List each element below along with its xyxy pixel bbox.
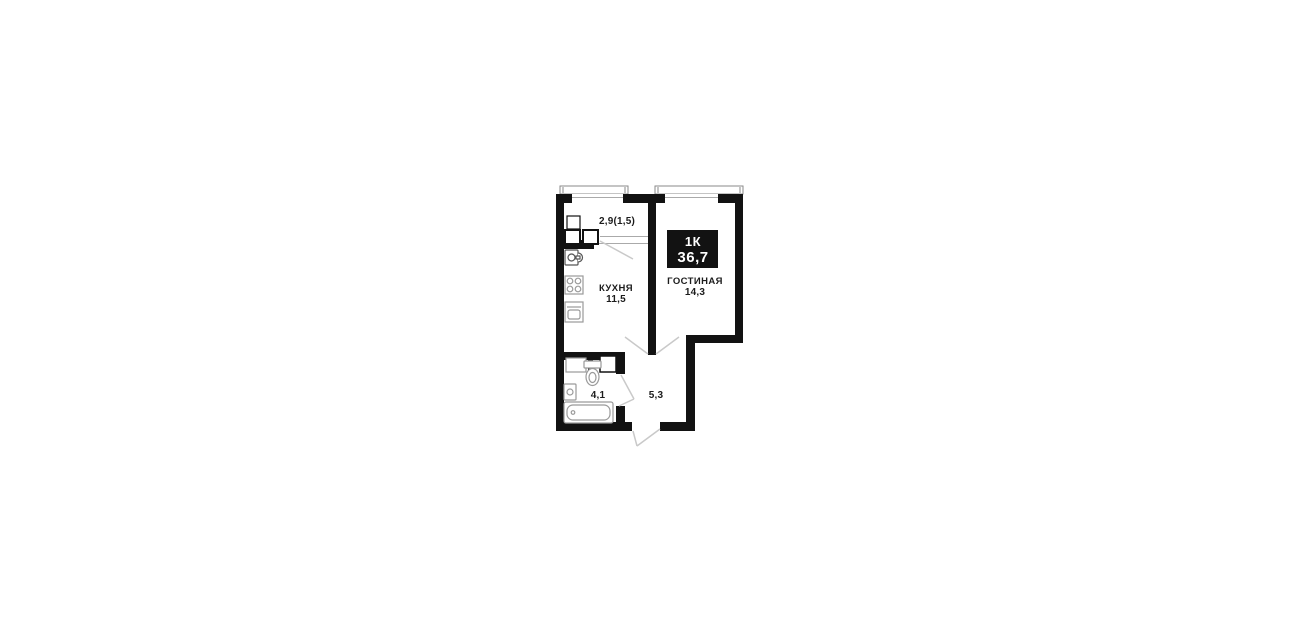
- window-opening: [665, 194, 718, 203]
- wall-hall-right: [686, 335, 695, 431]
- entrance-door-icon: [637, 429, 660, 446]
- living-name-label: ГОСТИНАЯ: [667, 276, 723, 287]
- wall-bath-right-upper: [616, 352, 625, 374]
- bathroom-area-label: 4,1: [591, 390, 606, 401]
- floor-plan-page: 1К 36,7 2,9(1,5) КУХНЯ 11,5 ГОСТИНАЯ 14,…: [0, 0, 1301, 630]
- wall-left: [556, 194, 564, 431]
- hallway-area-label: 5,3: [649, 390, 664, 401]
- balcony-cabinet-icon: [565, 216, 598, 244]
- wall-bath-right-lower: [616, 406, 625, 431]
- wall-divider: [648, 194, 656, 355]
- floor-plan: 1К 36,7 2,9(1,5) КУХНЯ 11,5 ГОСТИНАЯ 14,…: [0, 0, 1301, 630]
- bathroom-door-icon: [621, 375, 634, 399]
- refrigerator-icon: [565, 302, 583, 322]
- kitchen-name-label: КУХНЯ: [599, 283, 633, 294]
- stove-icon: [565, 276, 583, 294]
- living-door-icon: [656, 337, 679, 354]
- living-area-label: 14,3: [685, 287, 706, 298]
- bathroom-door-icon: [619, 399, 634, 406]
- kitchen-window-icon: [560, 186, 628, 194]
- badge-type-label: 1К: [685, 234, 701, 249]
- window-opening: [572, 194, 623, 203]
- kitchen-door-icon: [625, 337, 648, 354]
- living-window-icon: [655, 186, 743, 194]
- wall-right: [735, 194, 743, 343]
- bathtub-icon: [564, 402, 613, 423]
- entrance-door-icon: [633, 431, 637, 446]
- windows: [560, 186, 743, 194]
- kitchen-area-label: 11,5: [606, 294, 626, 305]
- kitchen-sink-icon: [565, 250, 583, 265]
- wash-basin-icon: [564, 384, 576, 400]
- balcony-area-label: 2,9(1,5): [599, 216, 635, 227]
- entrance-opening: [632, 422, 660, 431]
- badge-area-label: 36,7: [677, 249, 708, 266]
- apartment-badge: 1К 36,7: [667, 230, 718, 268]
- toilet-icon: [584, 361, 601, 386]
